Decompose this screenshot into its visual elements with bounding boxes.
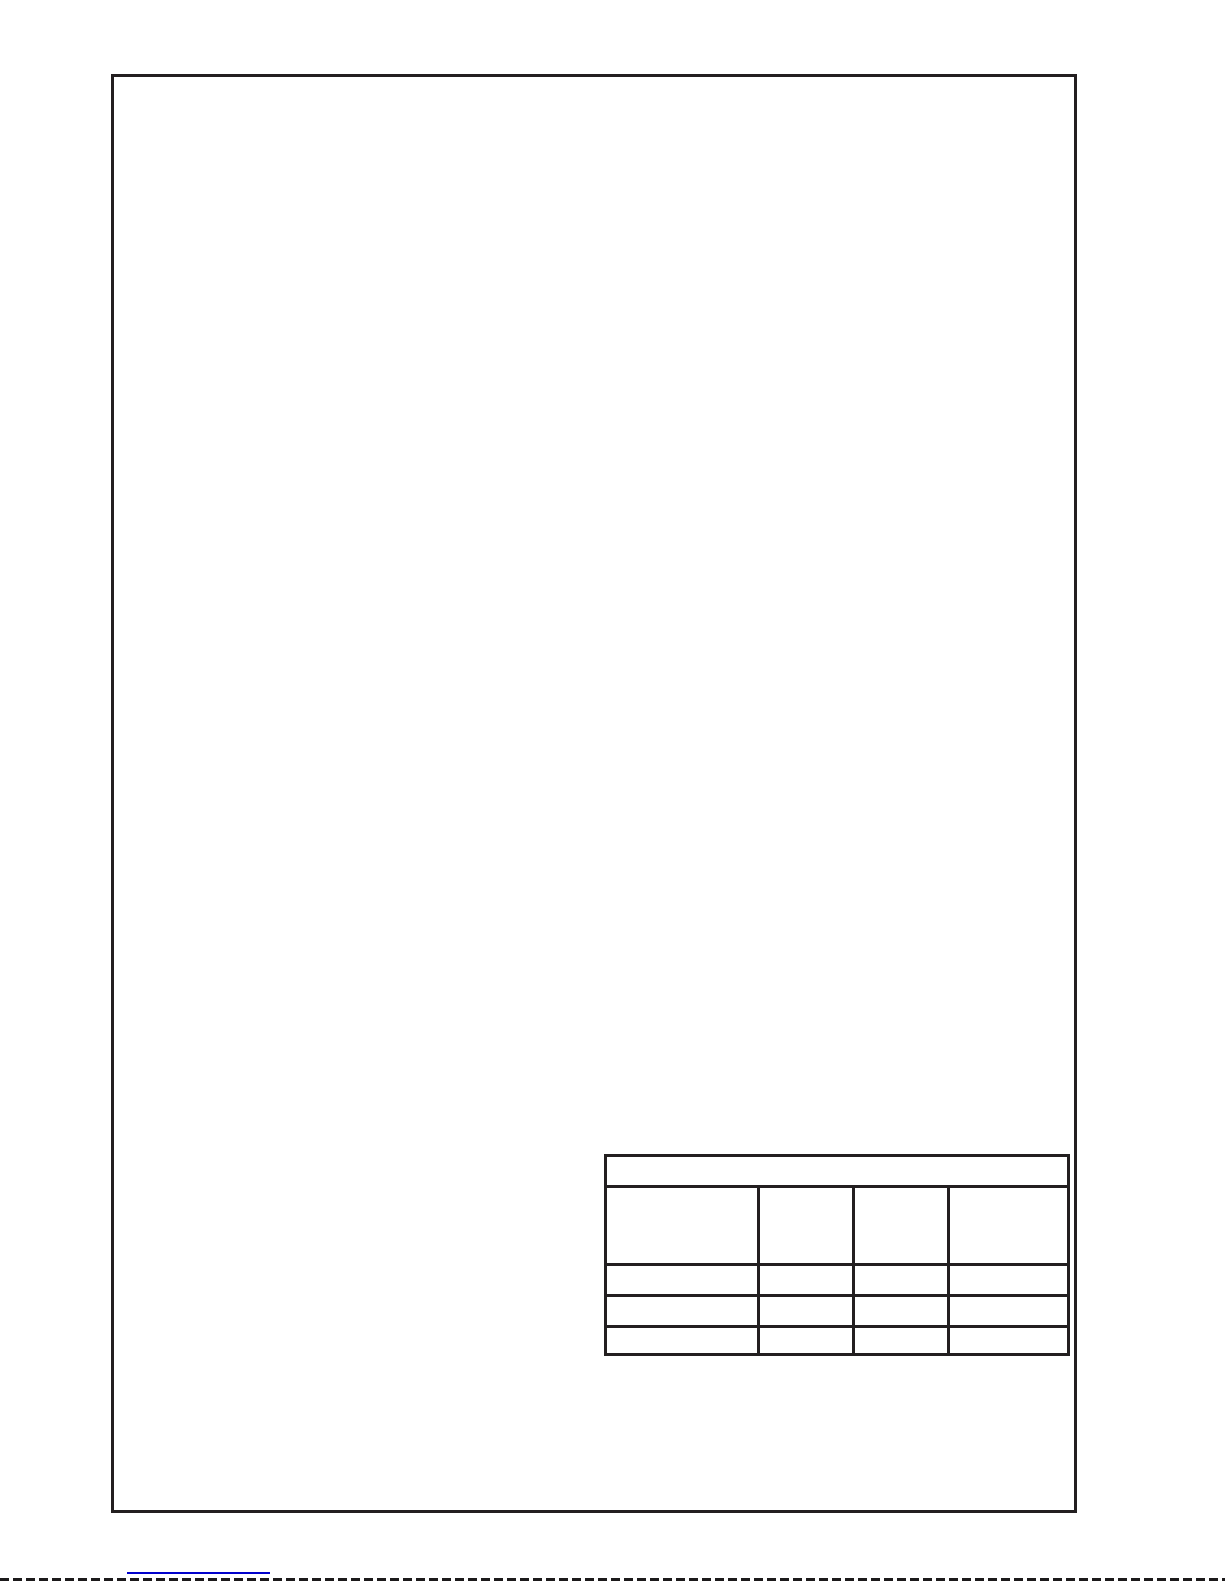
- table-header-cell: [607, 1188, 757, 1263]
- table-cell: [760, 1297, 852, 1325]
- bottom-dashed-divider: [0, 1578, 1225, 1581]
- table-cell: [607, 1328, 757, 1353]
- table-cell: [950, 1266, 1067, 1294]
- table-cell: [760, 1328, 852, 1353]
- table-cell: [607, 1297, 757, 1325]
- table-header-cell: [950, 1188, 1067, 1263]
- document-page: [0, 0, 1225, 1585]
- table-title-cell: [607, 1157, 1067, 1185]
- table-cell: [760, 1266, 852, 1294]
- table-cell: [607, 1266, 757, 1294]
- table-cell: [950, 1297, 1067, 1325]
- table-header-cell: [855, 1188, 947, 1263]
- table-cell: [855, 1266, 947, 1294]
- footer-link-underline[interactable]: [127, 1572, 270, 1574]
- table-cell: [950, 1328, 1067, 1353]
- table-cell: [855, 1297, 947, 1325]
- empty-form-table: [604, 1154, 1070, 1356]
- table-header-cell: [760, 1188, 852, 1263]
- table-cell: [855, 1328, 947, 1353]
